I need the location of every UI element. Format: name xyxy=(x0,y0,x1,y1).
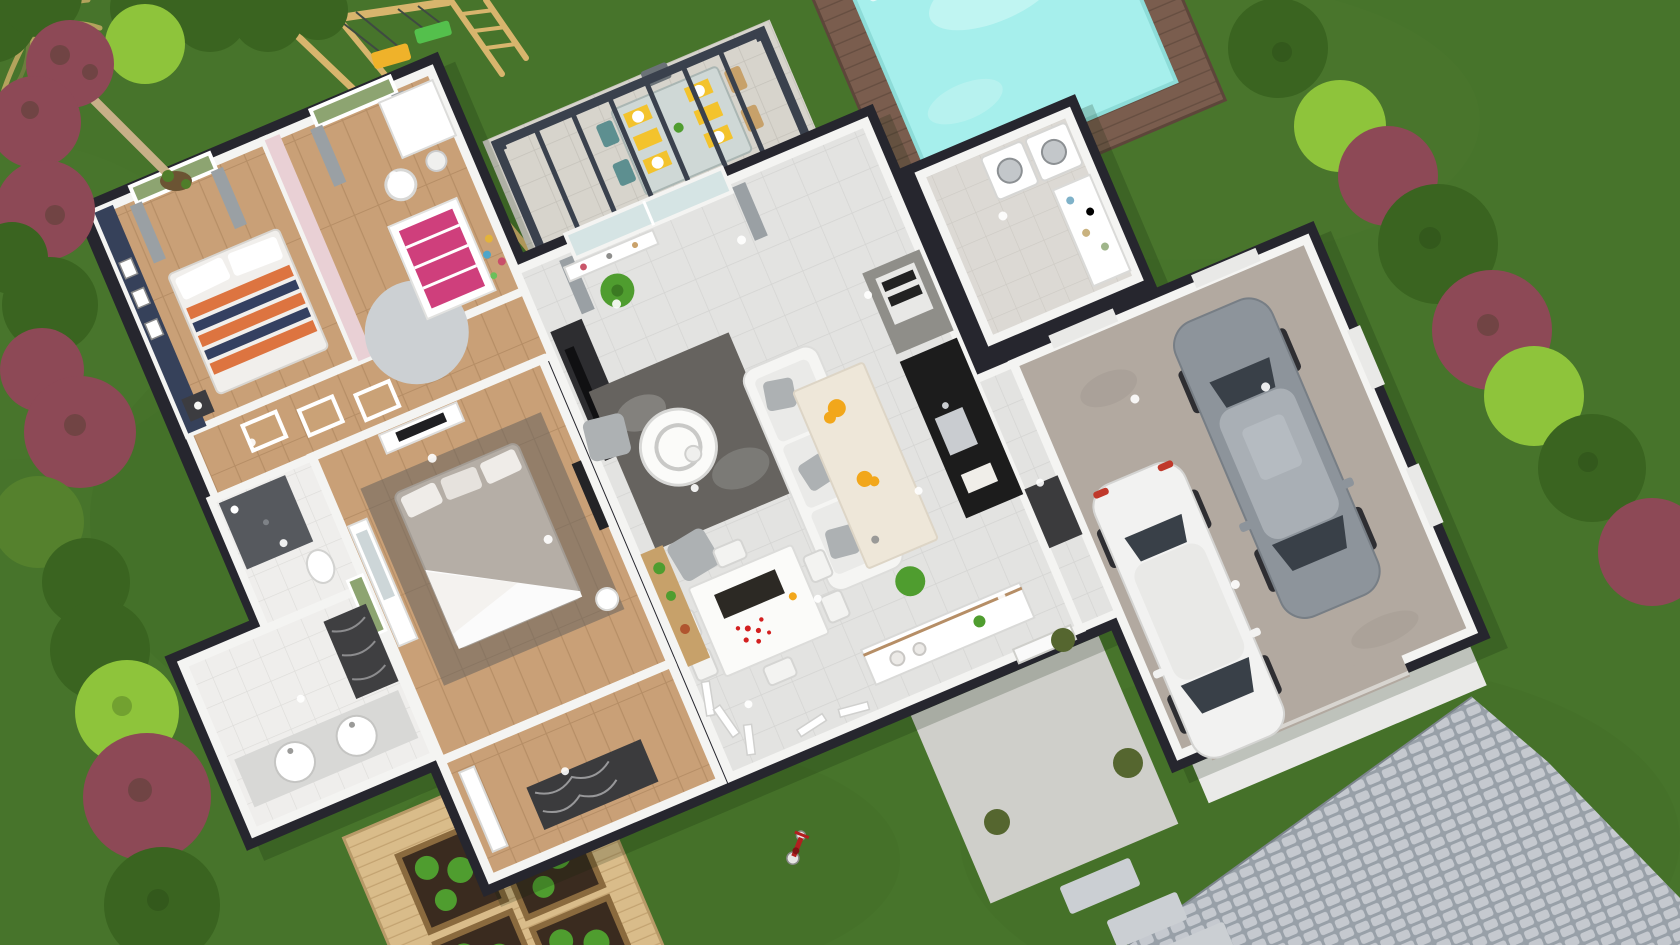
floorplan-render xyxy=(0,0,1680,945)
scene-canvas xyxy=(0,0,1680,945)
